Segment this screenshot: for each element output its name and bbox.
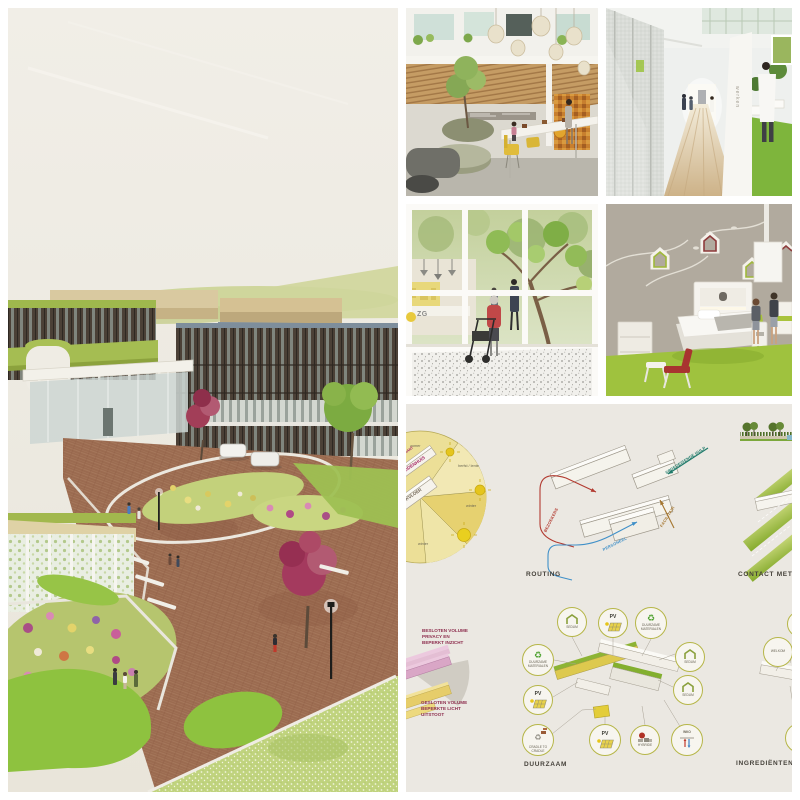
concept-diagram-sheet: SEDUM PV ♻ DUURZAME MATERIALEN ♻ DUURZAM… <box>406 404 792 792</box>
icon-circle-cradle: ♻ CRADLE TO CRADLE <box>522 724 554 756</box>
routing-title: ROUTING <box>526 571 561 578</box>
solar-panel-icon <box>529 698 547 709</box>
routing-blocks <box>550 445 678 540</box>
exterior-art <box>8 8 398 792</box>
hybride-icon <box>637 732 653 743</box>
interior-photo-corridor: werken <box>606 8 792 196</box>
icon-circle-hybride: HYBRIDE <box>630 725 660 755</box>
icon-circle-sedum-1: SEDUM <box>557 607 587 637</box>
season-label-herfst-lente: herfst / lente <box>458 464 479 468</box>
cradle-icon: ♻ <box>534 727 541 745</box>
icon-label: WELKOM <box>771 650 785 654</box>
icon-label: WKO <box>683 731 691 735</box>
season-label-winter-2: winter <box>418 542 428 546</box>
icon-label: DUURZAME MATERIALEN <box>525 661 551 668</box>
duurzaam-title: DUURZAAM <box>524 761 567 768</box>
icon-label: PV <box>602 732 609 737</box>
glass-sign-zg: ZG <box>417 311 428 318</box>
note-line: BEPERKT INZICHT <box>422 640 468 646</box>
volume-note-1: BESLOTEN VOLUME PRIVACY EN BEPERKT INZIC… <box>422 628 468 646</box>
wko-icon <box>679 736 695 749</box>
icon-circle-wko: WKO <box>671 724 703 756</box>
sedum-house-icon <box>681 682 695 693</box>
icon-label: PV <box>610 615 617 620</box>
corridor-art <box>606 8 792 196</box>
glass-wall <box>606 8 664 196</box>
sedum-house-icon <box>683 649 697 660</box>
brick <box>541 731 546 734</box>
icon-circle-pv-3: PV <box>589 724 621 756</box>
exterior-photo <box>8 8 398 792</box>
icon-circle-pv-2: PV <box>523 685 553 715</box>
interior-photo-winter-garden: ZG <box>406 204 598 396</box>
recycle-icon: ♻ <box>534 733 541 742</box>
solar-panel-icon <box>596 738 614 749</box>
icon-circle-pv-1: PV <box>598 608 628 638</box>
icon-circle-welkom: WELKOM <box>763 637 792 667</box>
icon-label: CRADLE TO CRADLE <box>526 746 550 753</box>
icon-circle-sedum-3: SEDUM <box>673 675 703 705</box>
collage-poster: werken <box>0 0 800 800</box>
restaurant-art <box>406 8 598 196</box>
note-line: UITSTOOT <box>421 712 467 718</box>
interior-photo-patient-room <box>606 204 792 396</box>
contact-diagram <box>740 422 792 582</box>
recycle-icon: ♻ <box>647 614 655 623</box>
icon-label: SEDUM <box>566 626 578 630</box>
icon-label: SEDUM <box>684 661 696 665</box>
recycle-icon: ♻ <box>534 651 542 660</box>
icon-label: SEDUM <box>682 694 694 698</box>
brick <box>543 728 547 731</box>
volume-note-2: GESLOTEN VOLUME BEPERKTE LICHT UITSTOOT <box>421 700 467 718</box>
sedum-house-icon <box>565 614 579 625</box>
icon-label: DUURZAME MATERIALEN <box>638 624 664 631</box>
icon-circle-sedum-2: SEDUM <box>675 642 705 672</box>
icon-label: HYBRIDE <box>638 744 652 748</box>
terrazzo-floor <box>406 348 598 396</box>
icon-circle-materials-1: ♻ DUURZAME MATERIALEN <box>635 607 667 639</box>
solar-panel-icon <box>604 621 622 632</box>
patient-room-art <box>606 204 792 396</box>
duurzaam-building <box>552 637 681 734</box>
werken-column-label: werken <box>734 86 740 108</box>
winter-garden-art <box>406 204 598 396</box>
column <box>546 64 552 146</box>
icon-label: PV <box>535 692 542 697</box>
contact-title: CONTACT MET DE OMGEVING <box>738 571 792 578</box>
icon-circle-materials-2: ♻ DUURZAME MATERIALEN <box>522 644 554 676</box>
logo-dot <box>406 312 416 322</box>
ingredienten-title: INGREDIËNTEN <box>736 760 792 767</box>
interior-photo-restaurant <box>406 8 598 196</box>
season-label-winter-1: winter <box>466 504 476 508</box>
